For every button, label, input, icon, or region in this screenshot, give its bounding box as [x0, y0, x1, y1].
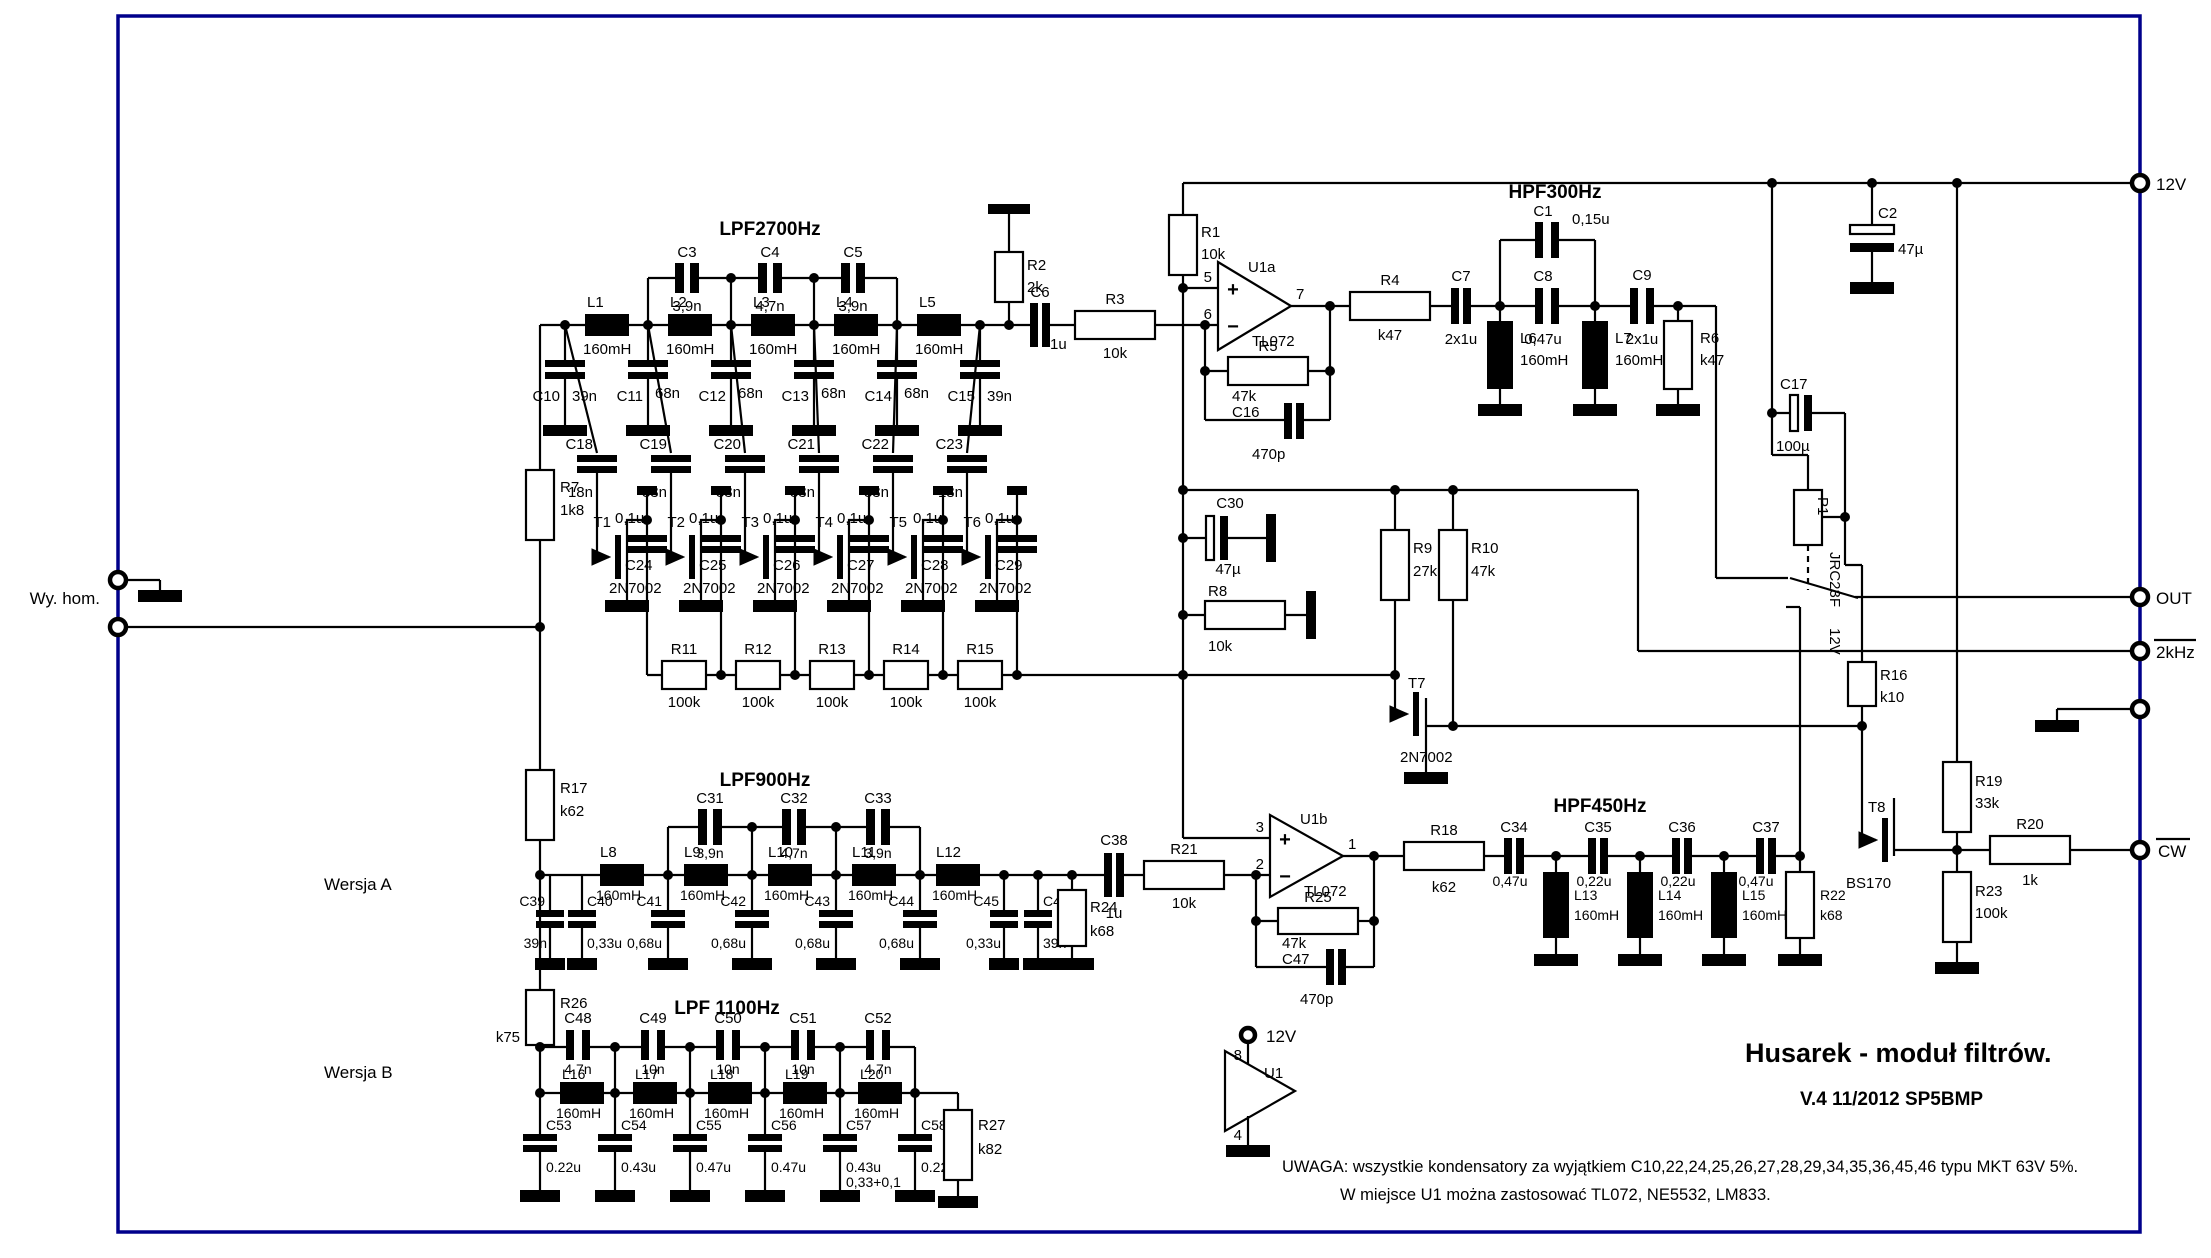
- schematic-title: Husarek - moduł filtrów.: [1745, 1038, 2052, 1068]
- label-C54-val: 0.43u: [621, 1159, 656, 1175]
- capacitor-C38: [1104, 853, 1112, 897]
- rail-stub: [988, 204, 1030, 214]
- capacitor-C52: [866, 1030, 874, 1060]
- resistor-R4: [1350, 292, 1430, 320]
- ground-icon: [595, 1190, 635, 1202]
- label-R16-val: k10: [1880, 689, 1904, 706]
- ground-icon: [1656, 404, 1700, 416]
- label-R14-val: 100k: [890, 694, 923, 711]
- label-C5-val: 3,9n: [838, 298, 867, 315]
- label-R24-val: k68: [1090, 923, 1114, 940]
- ground-icon: [648, 958, 688, 970]
- supply-and-relay: 12V C247µ C17100µ P1 JRC23F 12V OUT 2kHz: [1183, 175, 2196, 732]
- label-L5-val: 160mH: [915, 341, 963, 358]
- label-R4-val: k47: [1378, 327, 1402, 344]
- input-terminals: Wy. hom.: [30, 572, 540, 635]
- fet-switch-bank: C1818n T10,1u C242N7002 C1933n T20,1u C2…: [565, 436, 1183, 711]
- label-C20-val: 33n: [716, 484, 741, 501]
- label-R9-ref: R9: [1413, 540, 1432, 557]
- inductor-L6: [1487, 321, 1513, 389]
- lpf2700-title: LPF2700Hz: [719, 219, 820, 240]
- label-T6-ref: T6: [963, 514, 981, 531]
- label-C5-ref: C5: [843, 244, 862, 261]
- label-C42-val: 0,68u: [711, 935, 746, 951]
- label-C13-ref: C13: [781, 388, 809, 405]
- label-C34-ref: C34: [1500, 819, 1528, 836]
- resistor-R6: [1664, 321, 1692, 389]
- label-C18-val: 18n: [568, 484, 593, 501]
- label-R11-val: 100k: [668, 694, 701, 711]
- label-R9-val: 27k: [1413, 563, 1438, 580]
- capacitor-C3: [675, 263, 684, 293]
- label-T4-ref: T4: [815, 514, 833, 531]
- label-C4-ref: C4: [760, 244, 779, 261]
- terminal-CW-label: CW: [2158, 842, 2186, 861]
- capacitor-C20: [725, 455, 765, 462]
- minus-sign: −: [1279, 866, 1291, 888]
- label-C41-val: 0,68u: [627, 935, 662, 951]
- label-C31-val: 3,9n: [696, 845, 723, 861]
- terminal-12V: [2132, 175, 2148, 191]
- relay-switch-arm: [1790, 578, 1858, 598]
- label-R6-val: k47: [1700, 352, 1724, 369]
- ground-icon: [679, 600, 723, 612]
- inductor-L9: [684, 864, 728, 886]
- label-R22-val: k68: [1820, 907, 1843, 923]
- label-R17-val: k62: [560, 803, 584, 820]
- label-C16-val: 470p: [1252, 446, 1285, 463]
- label-C38-val: 1u: [1106, 905, 1123, 922]
- label-L7-val: 160mH: [1615, 352, 1663, 369]
- capacitor-C37: [1756, 838, 1764, 874]
- capacitor-C35: [1588, 838, 1596, 874]
- transistor-T3: [763, 535, 769, 579]
- resistor-R7: [526, 470, 554, 540]
- rail-stub: [1007, 486, 1027, 495]
- transistor-T5: [911, 535, 917, 579]
- label-C40-val: 0,33u: [587, 935, 622, 951]
- label-L1-ref: L1: [587, 294, 604, 311]
- resistor-R26: [526, 990, 554, 1045]
- u1b-stage: + − 3 2 1 U1bTL072 R25 47k C47 470p: [1251, 811, 1404, 1008]
- ground-icon: [975, 600, 1019, 612]
- note-line2: W miejsce U1 można zastosować TL072, NE5…: [1340, 1186, 1771, 1204]
- section-hpf300: HPF300Hz R4k47 C72x1u C10,15u C80,47u C9…: [1350, 182, 1724, 578]
- label-C35-ref: C35: [1584, 819, 1612, 836]
- inductor-L13: [1543, 872, 1569, 938]
- label-C3-val: 3,9n: [672, 298, 701, 315]
- label-T7-val: 2N7002: [1400, 749, 1453, 766]
- capacitor-C22: [873, 455, 913, 462]
- pin-3: 3: [1256, 819, 1264, 836]
- label-C44-val: 0,68u: [879, 935, 914, 951]
- label-R21-ref: R21: [1170, 841, 1198, 858]
- label-C44-ref: C44: [888, 893, 914, 909]
- label-R25-val: 47k: [1282, 935, 1307, 952]
- inductor-L12: [936, 864, 980, 886]
- ground-icon: [989, 958, 1019, 970]
- label-R3-val: 10k: [1103, 345, 1128, 362]
- transistor-T1: [615, 535, 621, 579]
- label-R22-ref: R22: [1820, 887, 1846, 903]
- label-P1-model: JRC23F: [1826, 552, 1843, 607]
- label-R5-val: 47k: [1232, 388, 1257, 405]
- label-C7-ref: C7: [1451, 268, 1470, 285]
- label-C11-ref: C11: [617, 388, 643, 405]
- ground-icon: [138, 590, 182, 602]
- label-L6-ref: L6: [1520, 330, 1537, 347]
- label-L11-val: 160mH: [848, 887, 893, 903]
- label-C14-ref: C14: [864, 388, 892, 405]
- label-C55-ref: C55: [696, 1117, 722, 1133]
- label-C26-val: 0,1u: [763, 510, 792, 527]
- ground-icon: [709, 425, 753, 436]
- schematic-canvas: Wy. hom. R7 1k8 R17 k62 R26 k75 Wersja A…: [0, 0, 2211, 1258]
- label-C56-ref: C56: [771, 1117, 797, 1133]
- label-C23-ref: C23: [935, 436, 963, 453]
- inductor-L10: [768, 864, 812, 886]
- capacitor-C16: [1284, 403, 1292, 439]
- label-R7-val: 1k8: [560, 502, 584, 519]
- label-C28-ref: C28: [921, 557, 949, 574]
- resistor-R1: [1169, 215, 1197, 275]
- label-R14-ref: R14: [892, 641, 920, 658]
- transistor-T2: [689, 535, 695, 579]
- capacitor-C32: [782, 809, 791, 845]
- pin-7: 7: [1296, 286, 1304, 303]
- label-C43-ref: C43: [804, 893, 830, 909]
- hpf300-title: HPF300Hz: [1509, 182, 1602, 203]
- label-C45-ref: C45: [973, 893, 999, 909]
- ground-icon: [875, 425, 919, 436]
- resistor-R5: [1228, 357, 1308, 385]
- label-L13-ref: L13: [1574, 887, 1598, 903]
- label-R10-ref: R10: [1471, 540, 1499, 557]
- label-L15-ref: L15: [1742, 887, 1766, 903]
- label-C54-ref: C54: [621, 1117, 647, 1133]
- t7-relay-driver: R927k R1047k T72N7002: [1183, 485, 1867, 784]
- label-L6-val: 160mH: [1520, 352, 1568, 369]
- capacitor-C19: [651, 455, 691, 462]
- label-R1-ref: R1: [1201, 224, 1220, 241]
- pin-8: 8: [1234, 1047, 1242, 1064]
- u1a-stage: R22k C61u R310k R110k + − 5 6 7 U1aTL072…: [988, 183, 1350, 838]
- label-L9-val: 160mH: [680, 887, 725, 903]
- resistor-R10: [1439, 530, 1467, 600]
- label-C30-val: 47µ: [1215, 561, 1241, 578]
- ground-icon: [753, 600, 797, 612]
- label-C43-val: 0,68u: [795, 935, 830, 951]
- label-R16-ref: R16: [1880, 667, 1908, 684]
- inductor-L19: [783, 1082, 827, 1104]
- lpf900-title: LPF900Hz: [720, 770, 811, 791]
- label-C47-ref: C47: [1282, 951, 1310, 968]
- label-R25-ref: R25: [1304, 889, 1332, 906]
- capacitor-C48: [566, 1030, 574, 1060]
- label-T8-ref: T8: [1868, 799, 1886, 816]
- section-hpf450: HPF450Hz R18k62 C340,47u C350,22u C360,2…: [1404, 607, 1846, 966]
- resistor-R8: [1205, 601, 1285, 629]
- inductor-L11: [852, 864, 896, 886]
- resistor-R15: [958, 661, 1002, 689]
- label-C20-ref: C20: [713, 436, 741, 453]
- label-L20-ref: L20: [860, 1066, 884, 1082]
- hpf450-title: HPF450Hz: [1554, 796, 1647, 817]
- label-R8-val: 10k: [1208, 638, 1233, 655]
- capacitor-C2: [1850, 225, 1894, 234]
- ground-icon: [1404, 772, 1448, 784]
- label-R11-ref: R11: [671, 641, 697, 658]
- ground-icon: [901, 600, 945, 612]
- transistor-T7: [1413, 692, 1419, 736]
- bias-network: C3047µ R810k: [1178, 485, 1395, 838]
- inductor-L17: [633, 1082, 677, 1104]
- label-C39-ref: C39: [519, 893, 545, 909]
- transistor-T6: [985, 535, 991, 579]
- capacitor-C36: [1672, 838, 1680, 874]
- label-C50-ref: C50: [714, 1010, 742, 1027]
- ground-icon: [1573, 404, 1617, 416]
- label-L18-ref: L18: [710, 1066, 734, 1082]
- label-C7-val: 2x1u: [1445, 331, 1478, 348]
- pin-1: 1: [1348, 836, 1356, 853]
- ground-icon: [732, 958, 772, 970]
- label-R1-val: 10k: [1201, 246, 1226, 263]
- label-C1-val: 0,15u: [1572, 211, 1610, 228]
- label-C28-val: 0,1u: [913, 510, 942, 527]
- label-U1b-ref: U1b: [1300, 811, 1328, 828]
- label-C9-ref: C9: [1632, 267, 1651, 284]
- label-C56-val: 0.47u: [771, 1159, 806, 1175]
- label-C19-val: 33n: [642, 484, 667, 501]
- label-C12-ref: C12: [698, 388, 726, 405]
- section-lpf1100: LPF 1100Hz C484.7n C4910n C5010n C5110n …: [520, 998, 1006, 1208]
- label-C53-val: 0.22u: [546, 1159, 581, 1175]
- ground-icon: [1534, 954, 1578, 966]
- label-C42-ref: C42: [720, 893, 746, 909]
- capacitor-C4: [758, 263, 767, 293]
- capacitor-C1: [1535, 222, 1543, 258]
- minus-sign: −: [1227, 316, 1239, 338]
- label-T1-val: 2N7002: [609, 580, 662, 597]
- label-L12-ref: L12: [936, 844, 961, 861]
- label-C36-ref: C36: [1668, 819, 1696, 836]
- label-C51-ref: C51: [789, 1010, 817, 1027]
- capacitor-C51: [791, 1030, 799, 1060]
- input-ground-terminal: [110, 572, 126, 588]
- capacitor-C28: [923, 535, 963, 542]
- label-C33-ref: C33: [864, 790, 892, 807]
- label-R26-val: k75: [496, 1029, 520, 1046]
- ground-icon: [816, 958, 856, 970]
- ground-icon: [1023, 958, 1053, 970]
- label-R12-val: 100k: [742, 694, 775, 711]
- ground-icon: [670, 1190, 710, 1202]
- label-C52-ref: C52: [864, 1010, 892, 1027]
- resistor-R21: [1144, 861, 1224, 889]
- label-C39-val: 39n: [524, 935, 547, 951]
- label-C25-ref: C25: [699, 557, 727, 574]
- label-L17-ref: L17: [635, 1066, 659, 1082]
- label-L8-ref: L8: [600, 844, 617, 861]
- label-C29-ref: C29: [995, 557, 1023, 574]
- label-C49-ref: C49: [639, 1010, 667, 1027]
- resistor-R24: [1058, 890, 1086, 946]
- ground-icon: [958, 425, 1002, 436]
- resistor-R13: [810, 661, 854, 689]
- note-line1: UWAGA: wszystkie kondensatory za wyjątki…: [1282, 1158, 2078, 1176]
- label-C22-ref: C22: [861, 436, 889, 453]
- resistor-R3: [1075, 311, 1155, 339]
- label-T2-ref: T2: [667, 514, 685, 531]
- label-C31-ref: C31: [696, 790, 724, 807]
- capacitor-C9: [1630, 288, 1638, 324]
- label-C23-val: 18n: [938, 484, 963, 501]
- ground-icon: [827, 600, 871, 612]
- inductor-L4: [834, 314, 878, 336]
- inductor-L16: [560, 1082, 604, 1104]
- resistor-R11: [662, 661, 706, 689]
- label-C12-val: 68n: [738, 385, 763, 402]
- ground-icon: [1850, 282, 1894, 294]
- input-signal-terminal: [110, 619, 126, 635]
- label-R19-val: 33k: [1975, 795, 2000, 812]
- resistor-cell-R27: R27k82: [938, 1093, 1006, 1208]
- terminal-12V-label: 12V: [2156, 175, 2187, 194]
- capacitor-C7: [1451, 288, 1459, 324]
- title-block: Husarek - moduł filtrów. V.4 11/2012 SP5…: [1282, 1038, 2078, 1204]
- label-C53-ref: C53: [546, 1117, 572, 1133]
- rail-stub: [1306, 591, 1316, 639]
- capacitor-C21: [799, 455, 839, 462]
- label-L12-val: 160mH: [932, 887, 977, 903]
- capacitor-C26: [775, 535, 815, 542]
- label-U1-ref: U1: [1264, 1065, 1283, 1082]
- resistor-R20: [1990, 836, 2070, 864]
- label-L10-val: 160mH: [764, 887, 809, 903]
- capacitor-C25: [701, 535, 741, 542]
- ground-icon: [820, 1190, 860, 1202]
- rail-stub: [1266, 514, 1276, 562]
- label-C1-ref: C1: [1533, 203, 1552, 220]
- label-C17-ref: C17: [1780, 376, 1808, 393]
- label-L19-ref: L19: [785, 1066, 809, 1082]
- label-R27-ref: R27: [978, 1117, 1006, 1134]
- wersja-a-label: Wersja A: [324, 875, 392, 894]
- terminal-12V-u1: [1241, 1028, 1255, 1042]
- label-C22-val: 33n: [864, 484, 889, 501]
- label-C33-val: 3,9n: [864, 845, 891, 861]
- label-C24-val: 0,1u: [615, 510, 644, 527]
- label-L14-ref: L14: [1658, 887, 1682, 903]
- capacitor-C50: [716, 1030, 724, 1060]
- terminal-CW: [2132, 842, 2148, 858]
- ground-icon: [792, 425, 836, 436]
- label-T5-val: 2N7002: [905, 580, 958, 597]
- label-C41-ref: C41: [636, 893, 662, 909]
- input-label: Wy. hom.: [30, 589, 100, 608]
- label-C57-val: 0.43u: [846, 1159, 881, 1175]
- label-C29-val: 0,1u: [985, 510, 1014, 527]
- label-C27-ref: C27: [847, 557, 875, 574]
- label-L4-val: 160mH: [832, 341, 880, 358]
- ground-icon: [938, 1196, 978, 1208]
- label-R13-ref: R13: [818, 641, 846, 658]
- label-U1a-ref: U1a: [1248, 259, 1276, 276]
- label-R4-ref: R4: [1380, 272, 1399, 289]
- ground-icon: [1778, 954, 1822, 966]
- label-L14-val: 160mH: [1658, 907, 1703, 923]
- label-C27-val: 0,1u: [837, 510, 866, 527]
- ground-icon: [520, 1190, 560, 1202]
- inductor-L18: [708, 1082, 752, 1104]
- label-C57-note: 0,33+0,1: [846, 1174, 901, 1190]
- capacitor-C23: [947, 455, 987, 462]
- resistor-R9: [1381, 530, 1409, 600]
- label-R18-ref: R18: [1430, 822, 1458, 839]
- label-C34-val: 0,47u: [1492, 873, 1527, 889]
- resistor-R27: [944, 1110, 972, 1180]
- label-C25-val: 0,1u: [689, 510, 718, 527]
- capacitor-C24: [627, 535, 667, 542]
- label-C2-val: 47µ: [1898, 241, 1924, 258]
- label-C15-ref: C15: [947, 388, 975, 405]
- label-R23-ref: R23: [1975, 883, 2003, 900]
- label-C15-val: 39n: [987, 388, 1012, 405]
- ground-icon: [605, 600, 649, 612]
- capacitor-C6: [1030, 303, 1038, 347]
- resistor-R22: [1786, 872, 1814, 938]
- schematic-version: V.4 11/2012 SP5BMP: [1800, 1089, 1983, 1110]
- wersja-b-label: Wersja B: [324, 1063, 393, 1082]
- label-T6-val: 2N7002: [979, 580, 1032, 597]
- input-bus: R7 1k8 R17 k62 R26 k75 Wersja A Wersja B: [324, 325, 588, 1093]
- resistor-R16: [1848, 662, 1876, 706]
- label-C32-val: 4,7n: [780, 845, 807, 861]
- ground-icon: [626, 425, 670, 436]
- ground-icon: [1618, 954, 1662, 966]
- resistor-R23: [1943, 872, 1971, 942]
- label-R18-val: k62: [1432, 879, 1456, 896]
- section-lpf900: LPF900Hz L8160mH L9160mH L10160mH L11160…: [519, 770, 1270, 970]
- label-T4-val: 2N7002: [831, 580, 884, 597]
- label-T3-ref: T3: [741, 514, 759, 531]
- label-R19-ref: R19: [1975, 773, 2003, 790]
- capacitor-C17: [1790, 395, 1798, 431]
- label-C38-ref: C38: [1100, 832, 1128, 849]
- label-C13-val: 68n: [821, 385, 846, 402]
- ground-icon: [1935, 962, 1979, 974]
- label-C17-val: 100µ: [1776, 438, 1810, 455]
- ground-icon: [543, 425, 587, 436]
- label-L5-ref: L5: [919, 294, 936, 311]
- label-C6-ref: C6: [1030, 284, 1049, 301]
- plus-sign: +: [1227, 279, 1239, 301]
- ground-icon: [1478, 404, 1522, 416]
- inductor-L3: [751, 314, 795, 336]
- lpf2700-shunt-caps: C1039n C1168n C1268n C1368n C1468n C1539…: [532, 320, 1012, 436]
- label-C24-ref: C24: [625, 557, 653, 574]
- pin-4: 4: [1234, 1127, 1242, 1144]
- label-C45-val: 0,33u: [966, 935, 1001, 951]
- label-R17-ref: R17: [560, 780, 588, 797]
- u1-power: 12V 8 4 U1: [1225, 1027, 1297, 1157]
- label-R23-val: 100k: [1975, 905, 2008, 922]
- ground-icon: [535, 958, 565, 970]
- label-L16-ref: L16: [562, 1066, 586, 1082]
- ground-icon: [567, 958, 597, 970]
- capacitor-C34: [1504, 838, 1512, 874]
